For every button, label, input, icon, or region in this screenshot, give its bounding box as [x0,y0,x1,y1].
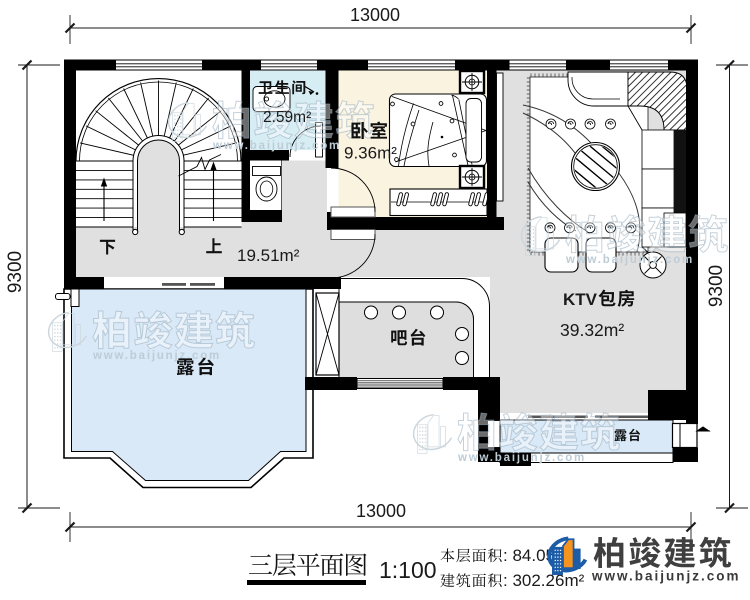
svg-text:9.36m²: 9.36m² [344,144,397,163]
svg-text:KTV: KTV [563,290,598,309]
svg-text:www.baijunjz.com: www.baijunjz.com [591,569,741,584]
svg-text:13000: 13000 [356,501,406,521]
svg-text:2.59m²: 2.59m² [263,109,311,126]
svg-text:19.51m²: 19.51m² [237,246,300,265]
svg-text:1:100: 1:100 [379,557,437,583]
svg-text:39.32m²: 39.32m² [560,320,624,340]
svg-text:9300: 9300 [5,251,26,293]
svg-text:: 302.26m²: : 302.26m² [503,571,585,590]
svg-text:13000: 13000 [350,5,400,25]
svg-text:9300: 9300 [706,265,727,307]
